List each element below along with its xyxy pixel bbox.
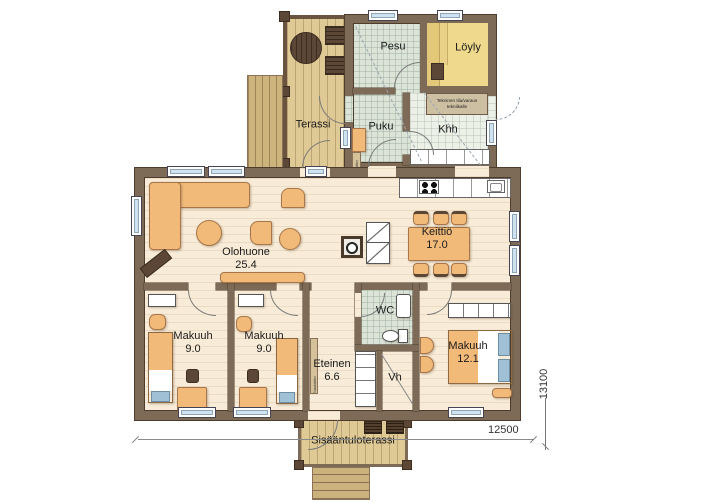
room-label-vh: Vh	[388, 372, 401, 385]
railing-post	[402, 460, 412, 470]
cabinet-half	[367, 243, 389, 263]
front-door-opening	[308, 411, 340, 420]
sauna-bench	[440, 23, 448, 65]
bench	[492, 388, 512, 398]
room-label-makuuhuone1: Makuuh9.0	[173, 330, 212, 356]
sideboard	[220, 272, 305, 283]
window	[167, 166, 205, 177]
room-label-olohuone: Olohuone25.4	[222, 246, 270, 272]
dimension-line-height	[545, 398, 546, 450]
room-label-khh: Khh	[438, 124, 458, 137]
dimension-width: 12500	[488, 424, 519, 436]
sink-basin	[490, 183, 502, 192]
room-label-makuuhuone2: Makuuh9.0	[244, 330, 283, 356]
dining-chair	[433, 263, 449, 277]
toilet-icon	[382, 330, 399, 342]
railing-post	[279, 11, 290, 22]
dimension-height: 13100	[538, 364, 550, 404]
bed-pillow	[151, 391, 170, 402]
wall	[216, 283, 276, 290]
window	[509, 211, 520, 242]
wardrobe	[448, 303, 511, 318]
door-arc	[496, 96, 520, 120]
window	[448, 407, 484, 418]
deck-chair	[325, 56, 346, 75]
sauna-stove-icon	[431, 63, 444, 80]
bed-sheet	[277, 375, 297, 392]
wall	[144, 283, 188, 290]
armchair	[250, 221, 272, 245]
boot-grate	[364, 421, 382, 434]
washbasin-icon	[396, 294, 411, 318]
cabinet-half	[367, 223, 389, 243]
entrance-steps	[312, 467, 370, 500]
dining-chair	[451, 263, 467, 277]
room-label-pesu: Pesu	[380, 41, 405, 54]
window	[178, 407, 216, 418]
window	[509, 245, 520, 276]
wall	[303, 283, 309, 411]
terrace-stairs	[247, 75, 283, 170]
room-label-eteinen: Eteinen6.6	[313, 358, 350, 384]
toilet-tank-icon	[398, 329, 408, 343]
hall-closet	[355, 351, 376, 407]
armchair	[281, 188, 305, 208]
window	[305, 166, 327, 177]
side-table	[279, 228, 301, 250]
dresser	[148, 294, 176, 307]
door-opening	[345, 96, 353, 122]
armchair	[149, 314, 166, 330]
room-label-keittio: Keittiö17.0	[422, 226, 453, 252]
coat-cabinet	[352, 128, 366, 152]
fireplace-icon	[341, 236, 363, 258]
door-opening	[488, 96, 496, 120]
dresser	[238, 294, 264, 307]
window	[208, 166, 245, 177]
door-opening	[368, 166, 396, 177]
dimension-tick	[530, 436, 537, 443]
wall	[228, 283, 234, 411]
dimension-line-width	[138, 439, 534, 440]
wall	[452, 283, 511, 290]
railing-post	[294, 460, 304, 470]
dining-chair	[413, 263, 429, 277]
room-label-wc: WC	[376, 305, 394, 318]
sofa	[149, 182, 181, 250]
hot-tub-icon	[290, 32, 322, 64]
flue-cabinet	[366, 222, 390, 264]
desk-chair	[247, 369, 259, 383]
window	[131, 196, 142, 236]
bed-pillow	[498, 333, 510, 356]
floor-plan: Tekninen tila/varaus tekniikalle Naulakk…	[0, 0, 724, 503]
bed-pillow	[279, 392, 296, 403]
room-label-makuuhuone3: Makuuh12.1	[448, 340, 487, 366]
window	[368, 10, 398, 21]
fireplace-flue	[346, 242, 358, 254]
window	[486, 120, 497, 146]
sink-icon	[487, 180, 505, 193]
bed-pillow	[498, 359, 510, 382]
room-label-terassi: Terassi	[296, 119, 331, 132]
coffee-table	[196, 220, 222, 246]
desk-chair	[186, 369, 199, 383]
dining-chair	[433, 211, 449, 225]
stove-icon	[419, 180, 439, 194]
room-label-puku: Puku	[368, 121, 393, 134]
dining-chair	[451, 211, 467, 225]
tech-note: Tekninen tila/varaus tekniikalle	[426, 93, 488, 115]
wall	[403, 155, 410, 165]
bed	[148, 332, 173, 403]
dining-chair	[413, 211, 429, 225]
boot-grate	[386, 421, 404, 434]
room-label-sisaantuloterassi: Sisääntuloterassi	[311, 435, 395, 448]
bed-cover	[149, 333, 172, 370]
bed-sheet	[149, 370, 172, 391]
window	[340, 127, 351, 149]
window	[437, 10, 463, 21]
tech-note-line2: tekniikalle	[447, 104, 467, 109]
tech-note-line1: Tekninen tila/varaus	[437, 98, 478, 103]
window	[233, 407, 271, 418]
room-label-loyly: Löyly	[455, 42, 481, 55]
deck-chair	[325, 26, 346, 45]
wall	[377, 351, 382, 411]
door-opening	[455, 166, 489, 177]
